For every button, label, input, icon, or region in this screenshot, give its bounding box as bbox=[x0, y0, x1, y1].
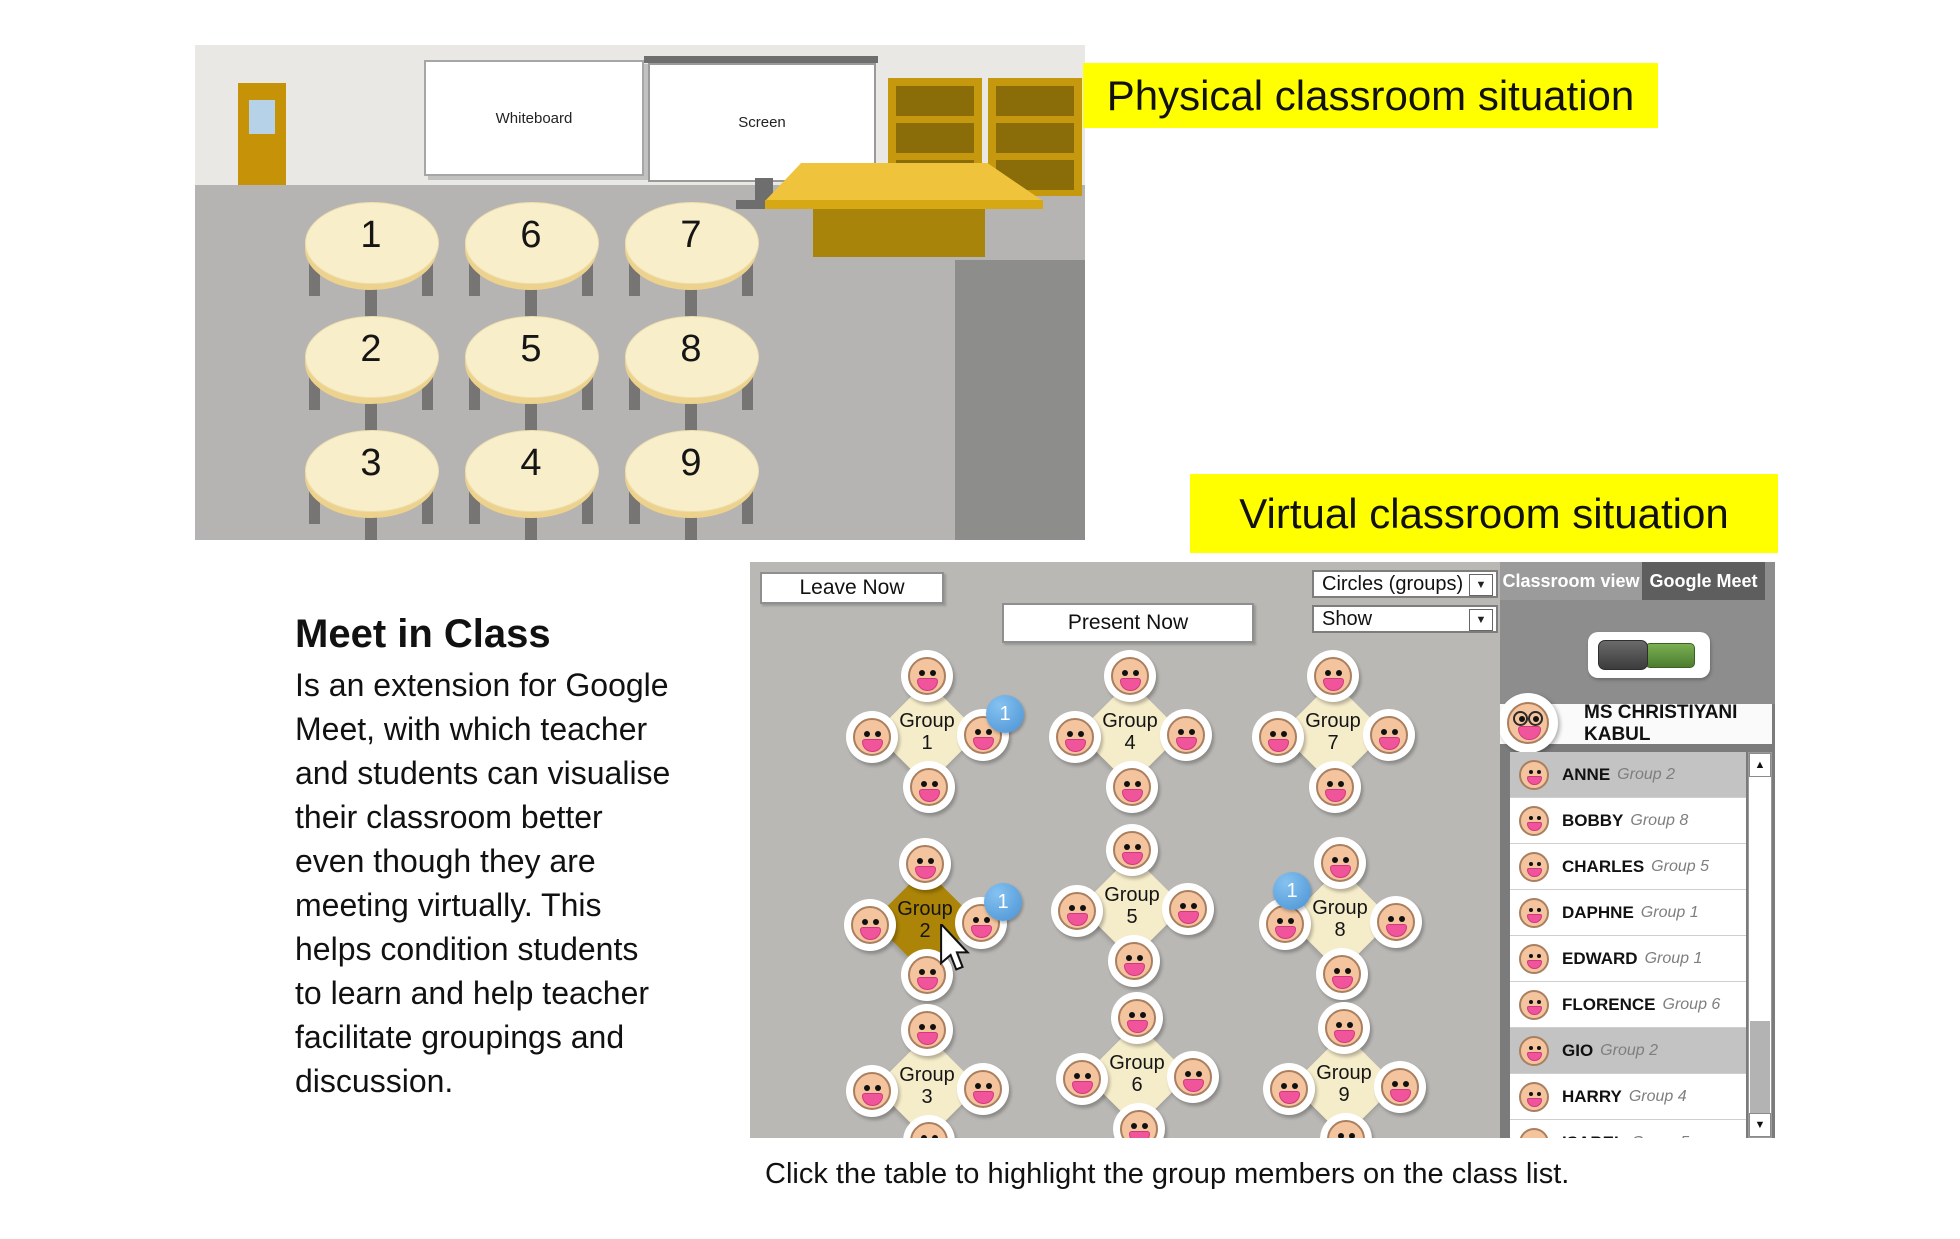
face-icon bbox=[908, 657, 946, 695]
face-icon bbox=[910, 1122, 948, 1138]
teacher-avatar bbox=[1500, 693, 1558, 753]
face-icon bbox=[1113, 768, 1151, 806]
student-group: Group 5 bbox=[1651, 858, 1709, 876]
face-icon bbox=[1325, 1009, 1363, 1047]
class-list-row-isabel[interactable]: ISABELGroup 5 bbox=[1510, 1120, 1746, 1138]
page: Whiteboard Screen 167258349 Physical cla… bbox=[0, 0, 1960, 1239]
table-number: 9 bbox=[625, 442, 757, 485]
student-avatar bbox=[1518, 759, 1550, 791]
student-group: Group 4 bbox=[1629, 1088, 1687, 1106]
face-icon bbox=[1118, 999, 1156, 1037]
toggle-track bbox=[1645, 643, 1695, 668]
group-label: Group6 bbox=[1087, 1052, 1187, 1096]
student-group: Group 1 bbox=[1645, 950, 1703, 968]
student-group: Group 5 bbox=[1631, 1134, 1689, 1139]
student-name: ISABEL bbox=[1562, 1133, 1624, 1139]
description-line: to learn and help teacher bbox=[295, 971, 765, 1015]
face-icon bbox=[1314, 657, 1352, 695]
physical-situation-label: Physical classroom situation bbox=[1083, 63, 1658, 128]
face-icon bbox=[1519, 806, 1549, 836]
mouse-cursor-icon bbox=[938, 924, 972, 972]
caption: Click the table to highlight the group m… bbox=[765, 1158, 1569, 1191]
student-avatar bbox=[1518, 897, 1550, 929]
class-list-row-anne[interactable]: ANNEGroup 2 bbox=[1510, 752, 1746, 798]
student-avatar bbox=[1518, 1035, 1550, 1067]
table-number: 1 bbox=[305, 214, 437, 257]
present-now-button[interactable]: Present Now bbox=[1002, 603, 1254, 643]
student-name: GIO bbox=[1562, 1041, 1593, 1061]
face-icon bbox=[1120, 1110, 1158, 1138]
face-icon bbox=[1519, 990, 1549, 1020]
student-name: BOBBY bbox=[1562, 811, 1623, 831]
scrollbar-thumb[interactable] bbox=[1750, 1021, 1770, 1113]
student-avatar bbox=[1104, 650, 1156, 702]
virtual-classroom-panel: Leave Now Present Now Circles (groups) ▼… bbox=[750, 562, 1500, 1138]
face-icon bbox=[1519, 944, 1549, 974]
class-list-row-bobby[interactable]: BOBBYGroup 8 bbox=[1510, 798, 1746, 844]
class-list-row-edward[interactable]: EDWARDGroup 1 bbox=[1510, 936, 1746, 982]
student-avatar bbox=[901, 650, 953, 702]
camera-toggle[interactable] bbox=[1588, 632, 1710, 678]
description-line: helps condition students bbox=[295, 927, 765, 971]
teacher-desk-body bbox=[813, 209, 985, 257]
class-list-scrollbar[interactable]: ▲ ▼ bbox=[1748, 752, 1772, 1138]
table-number: 6 bbox=[465, 214, 597, 257]
face-icon bbox=[1519, 898, 1549, 928]
notification-badge: 1 bbox=[986, 695, 1024, 733]
description-title: Meet in Class bbox=[295, 612, 765, 657]
sidebar: Classroom view Google Meet MS CHRISTIYAN… bbox=[1500, 562, 1775, 1138]
face-icon bbox=[1111, 657, 1149, 695]
show-dropdown[interactable]: Show ▼ bbox=[1312, 605, 1498, 633]
student-avatar bbox=[1518, 943, 1550, 975]
student-name: EDWARD bbox=[1562, 949, 1638, 969]
description-body: Is an extension for GoogleMeet, with whi… bbox=[295, 663, 765, 1103]
door-window bbox=[249, 100, 275, 134]
group-label: Group5 bbox=[1082, 884, 1182, 928]
toggle-knob[interactable] bbox=[1598, 640, 1648, 670]
description-line: meeting virtually. This bbox=[295, 883, 765, 927]
student-avatar bbox=[1309, 761, 1361, 813]
face-icon bbox=[1316, 768, 1354, 806]
scroll-down-icon[interactable]: ▼ bbox=[1749, 1113, 1771, 1137]
student-avatar bbox=[901, 1004, 953, 1056]
show-value: Show bbox=[1322, 608, 1372, 631]
class-list-row-harry[interactable]: HARRYGroup 4 bbox=[1510, 1074, 1746, 1120]
class-list-row-daphne[interactable]: DAPHNEGroup 1 bbox=[1510, 890, 1746, 936]
student-avatar bbox=[1316, 948, 1368, 1000]
student-avatar bbox=[1106, 761, 1158, 813]
face-icon bbox=[1323, 955, 1361, 993]
description-block: Meet in Class Is an extension for Google… bbox=[295, 612, 765, 1103]
table-number: 2 bbox=[305, 328, 437, 371]
student-avatar bbox=[899, 838, 951, 890]
table-number: 5 bbox=[465, 328, 597, 371]
face-icon bbox=[1519, 760, 1549, 790]
face-icon bbox=[1519, 1128, 1549, 1139]
student-avatar bbox=[1111, 992, 1163, 1044]
face-icon bbox=[906, 845, 944, 883]
face-icon bbox=[908, 1011, 946, 1049]
chevron-down-icon[interactable]: ▼ bbox=[1469, 609, 1493, 631]
screen-label: Screen bbox=[738, 114, 786, 131]
group-label: Group1 bbox=[877, 710, 977, 754]
description-line: Meet, with which teacher bbox=[295, 707, 765, 751]
class-list-row-gio[interactable]: GIOGroup 2 bbox=[1510, 1028, 1746, 1074]
student-avatar bbox=[1314, 837, 1366, 889]
tab-classroom-view[interactable]: Classroom view bbox=[1500, 562, 1642, 600]
description-line: their classroom better bbox=[295, 795, 765, 839]
teacher-name: MS CHRISTIYANI KABUL bbox=[1584, 702, 1772, 746]
view-mode-dropdown[interactable]: Circles (groups) ▼ bbox=[1312, 570, 1498, 598]
whiteboard: Whiteboard bbox=[424, 60, 644, 176]
student-name: ANNE bbox=[1562, 765, 1610, 785]
group-label: Group4 bbox=[1080, 710, 1180, 754]
notification-badge: 1 bbox=[1273, 872, 1311, 910]
view-mode-value: Circles (groups) bbox=[1322, 573, 1463, 596]
virtual-situation-label: Virtual classroom situation bbox=[1190, 474, 1778, 553]
face-icon bbox=[1113, 831, 1151, 869]
face-icon bbox=[1519, 852, 1549, 882]
teacher-face-icon bbox=[1507, 702, 1549, 744]
student-avatar bbox=[1518, 851, 1550, 883]
student-group: Group 2 bbox=[1600, 1042, 1658, 1060]
description-line: Is an extension for Google bbox=[295, 663, 765, 707]
description-line: facilitate groupings and bbox=[295, 1015, 765, 1059]
student-name: CHARLES bbox=[1562, 857, 1644, 877]
class-list: ANNEGroup 2BOBBYGroup 8CHARLESGroup 5DAP… bbox=[1510, 752, 1746, 1138]
chevron-down-icon[interactable]: ▼ bbox=[1469, 574, 1493, 596]
student-group: Group 8 bbox=[1630, 812, 1688, 830]
student-avatar bbox=[1518, 989, 1550, 1021]
student-avatar bbox=[903, 761, 955, 813]
student-name: HARRY bbox=[1562, 1087, 1622, 1107]
student-name: DAPHNE bbox=[1562, 903, 1634, 923]
table-number: 3 bbox=[305, 442, 437, 485]
student-avatar bbox=[1518, 1127, 1550, 1139]
class-list-row-florence[interactable]: FLORENCEGroup 6 bbox=[1510, 982, 1746, 1028]
student-avatar bbox=[1106, 824, 1158, 876]
table-number: 4 bbox=[465, 442, 597, 485]
student-avatar bbox=[1307, 650, 1359, 702]
class-list-row-charles[interactable]: CHARLESGroup 5 bbox=[1510, 844, 1746, 890]
face-icon bbox=[910, 768, 948, 806]
teacher-desk-edge bbox=[765, 200, 1043, 209]
floor-dark-area bbox=[955, 260, 1085, 540]
student-avatar bbox=[1108, 935, 1160, 987]
table-number: 7 bbox=[625, 214, 757, 257]
scroll-up-icon[interactable]: ▲ bbox=[1749, 753, 1771, 777]
physical-classroom-illustration: Whiteboard Screen 167258349 bbox=[195, 45, 1085, 540]
student-avatar bbox=[1318, 1002, 1370, 1054]
projector-screen-rail bbox=[644, 56, 878, 63]
student-avatar bbox=[1518, 1081, 1550, 1113]
classroom-door bbox=[238, 83, 286, 185]
face-icon bbox=[1327, 1120, 1365, 1138]
description-line: even though they are bbox=[295, 839, 765, 883]
tab-google-meet[interactable]: Google Meet bbox=[1642, 562, 1765, 600]
student-name: FLORENCE bbox=[1562, 995, 1656, 1015]
face-icon bbox=[1519, 1036, 1549, 1066]
student-group: Group 2 bbox=[1617, 766, 1675, 784]
description-line: and students can visualise bbox=[295, 751, 765, 795]
face-icon bbox=[1115, 942, 1153, 980]
group-label: Group7 bbox=[1283, 710, 1383, 754]
student-avatar bbox=[1518, 805, 1550, 837]
face-icon bbox=[1321, 844, 1359, 882]
leave-now-button[interactable]: Leave Now bbox=[760, 572, 944, 604]
student-group: Group 1 bbox=[1641, 904, 1699, 922]
group-label: Group3 bbox=[877, 1064, 977, 1108]
table-number: 8 bbox=[625, 328, 757, 371]
notification-badge: 1 bbox=[984, 883, 1022, 921]
whiteboard-label: Whiteboard bbox=[496, 110, 573, 127]
description-line: discussion. bbox=[295, 1059, 765, 1103]
face-icon bbox=[1519, 1082, 1549, 1112]
student-group: Group 6 bbox=[1663, 996, 1721, 1014]
group-label: Group9 bbox=[1294, 1062, 1394, 1106]
